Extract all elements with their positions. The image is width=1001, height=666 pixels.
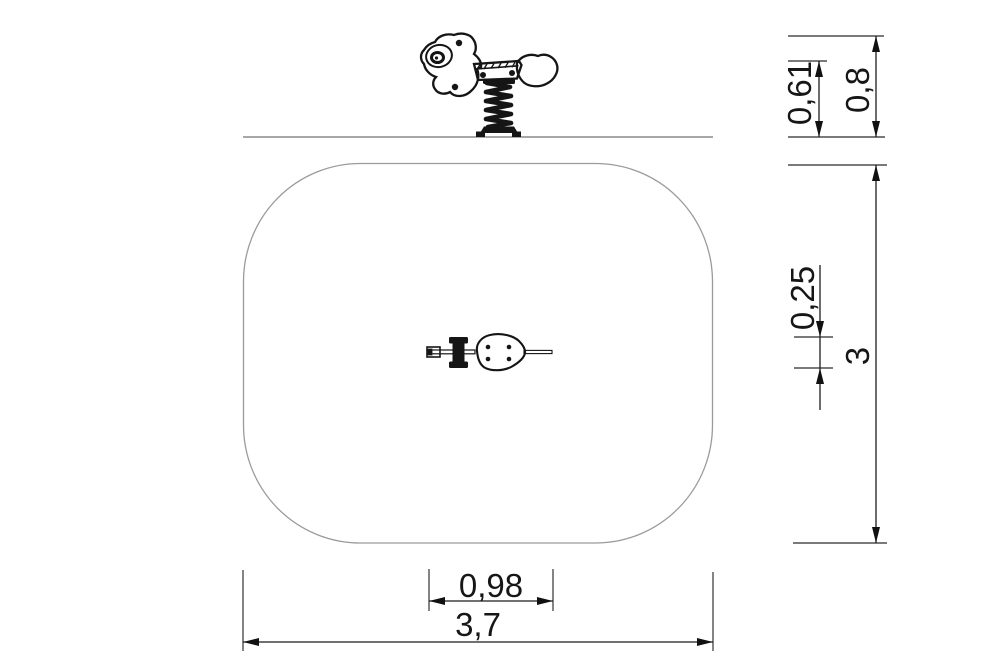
- body-bolt-2: [507, 345, 512, 350]
- arrowhead: [872, 36, 880, 52]
- footrest-cap-bottom: [449, 362, 468, 369]
- spring-rider-safety-zone-drawing: 0,61 0,8 3 0,25 0,98: [0, 0, 1001, 666]
- rider-tail: [517, 55, 558, 87]
- footrest-bar: [453, 341, 465, 365]
- handlebar-shaft-right: [524, 350, 552, 353]
- arrowhead: [816, 368, 824, 384]
- dim-zone-depth-label: 3: [839, 347, 876, 365]
- spring-coil: [486, 83, 511, 127]
- spring-rider-elevation: [421, 34, 557, 137]
- head-bolt-top: [456, 40, 462, 46]
- dim-seat-height-label: 0,61: [781, 61, 818, 125]
- dim-rider-width-label: 0,25: [784, 266, 821, 330]
- arrowhead: [872, 165, 880, 181]
- dimension-seat-height: 0,61: [781, 61, 827, 137]
- arrowhead: [243, 638, 259, 646]
- eye-pupil: [435, 56, 438, 59]
- rider-body-top-view: [477, 334, 525, 370]
- seat-bolt-right: [509, 70, 515, 76]
- arrowhead: [537, 597, 553, 605]
- dimension-zone-depth: 3: [788, 165, 887, 543]
- handle-grip: [428, 349, 433, 356]
- spring-rider-plan: [427, 334, 552, 370]
- technical-drawing-page: 0,61 0,8 3 0,25 0,98: [0, 0, 1001, 666]
- handlebar-shaft-left: [428, 350, 475, 354]
- arrowhead: [429, 597, 445, 605]
- dimension-rider-length: 0,98: [429, 567, 553, 611]
- base-foot-left: [476, 132, 485, 138]
- body-bolt-3: [486, 357, 491, 362]
- body-bolt-1: [486, 345, 491, 350]
- head-bolt-bottom: [452, 84, 458, 90]
- body-bolt-4: [507, 357, 512, 362]
- arrowhead: [872, 527, 880, 543]
- arrowhead: [872, 121, 880, 137]
- dim-total-height-label: 0,8: [839, 67, 876, 113]
- seat-bolt-left: [480, 72, 486, 78]
- dimension-rider-width: 0,25: [784, 265, 833, 410]
- dim-rider-length-label: 0,98: [459, 567, 523, 604]
- dim-zone-width-label: 3,7: [455, 606, 501, 643]
- arrowhead: [697, 638, 713, 646]
- base-foot-right: [512, 132, 521, 138]
